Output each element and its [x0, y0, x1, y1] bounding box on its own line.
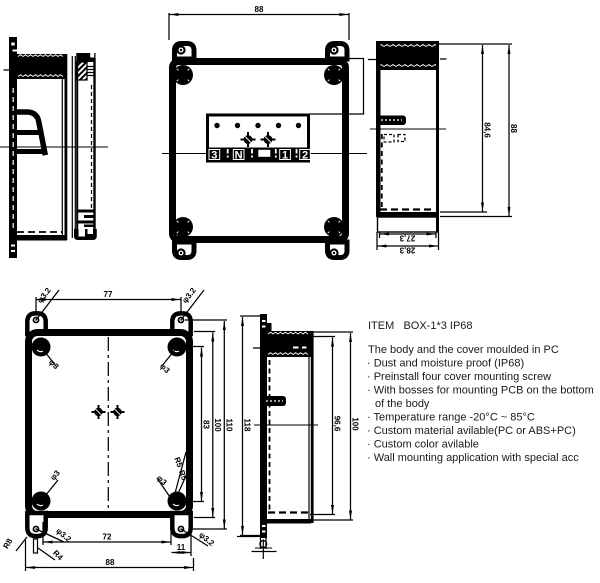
svg-text:118: 118 [243, 419, 252, 432]
svg-text:88: 88 [255, 5, 264, 14]
svg-text:96,6: 96,6 [333, 416, 342, 432]
svg-text:77: 77 [104, 290, 113, 299]
svg-text:83: 83 [202, 420, 211, 429]
svg-text:· Wall mounting application wi: · Wall mounting application with special… [367, 452, 579, 464]
svg-text:of the body: of the body [375, 398, 430, 410]
svg-text:28,3: 28,3 [399, 246, 415, 255]
svg-text:· Preinstall four cover mounti: · Preinstall four cover mounting screw [367, 371, 551, 383]
svg-text:· Custom material avilable(PC: · Custom material avilable(PC or ABS+PC) [367, 425, 576, 437]
svg-text:100: 100 [213, 418, 222, 432]
svg-text:72: 72 [103, 533, 112, 542]
svg-text:· Temperature range -20°C ~ 85: · Temperature range -20°C ~ 85°C [367, 412, 535, 424]
svg-text:100: 100 [351, 417, 360, 431]
svg-text:· Custom color avilable: · Custom color avilable [367, 439, 479, 451]
svg-text:27,3: 27,3 [399, 234, 415, 243]
svg-text:The body and the cover moulded: The body and the cover moulded in PC [368, 344, 559, 356]
svg-text:88: 88 [106, 558, 115, 567]
svg-text:110: 110 [225, 419, 234, 432]
svg-text:· Dust and moisture proof (IP6: · Dust and moisture proof (IP68) [367, 358, 524, 370]
svg-text:11: 11 [177, 543, 186, 552]
svg-text:· With bosses for mounting PCB: · With bosses for mounting PCB on the bo… [367, 385, 594, 397]
svg-text:ITEM BOX-1*3 IP68: ITEM BOX-1*3 IP68 [368, 320, 473, 332]
svg-text:88: 88 [509, 124, 518, 133]
svg-text:84,6: 84,6 [483, 122, 492, 138]
